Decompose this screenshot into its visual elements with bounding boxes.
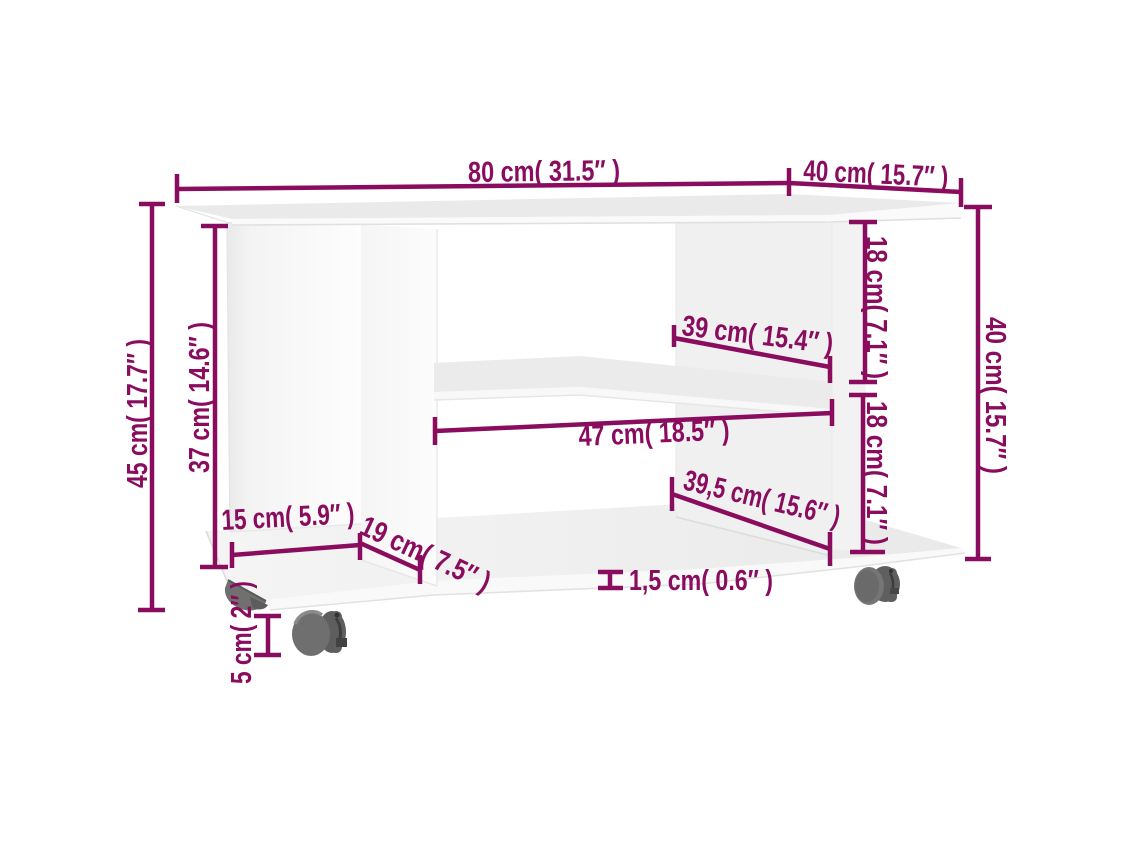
svg-text:40 cm( 15.7″ ): 40 cm( 15.7″ ) [979, 317, 1011, 474]
svg-text:37 cm( 14.6″ ): 37 cm( 14.6″ ) [184, 322, 216, 473]
svg-text:40 cm( 15.7″ ): 40 cm( 15.7″ ) [803, 155, 949, 194]
svg-text:18 cm( 7.1″ ): 18 cm( 7.1″ ) [860, 401, 892, 545]
svg-text:47 cm( 18.5″ ): 47 cm( 18.5″ ) [578, 414, 730, 453]
svg-text:80 cm( 31.5″ ): 80 cm( 31.5″ ) [468, 155, 620, 189]
svg-text:45 cm( 17.7″ ): 45 cm( 17.7″ ) [122, 339, 154, 488]
svg-text:18 cm( 7.1″ ): 18 cm( 7.1″ ) [860, 236, 892, 379]
svg-text:5 cm( 2″ ): 5 cm( 2″ ) [226, 581, 258, 684]
svg-text:1,5 cm( 0.6″ ): 1,5 cm( 0.6″ ) [629, 565, 773, 597]
